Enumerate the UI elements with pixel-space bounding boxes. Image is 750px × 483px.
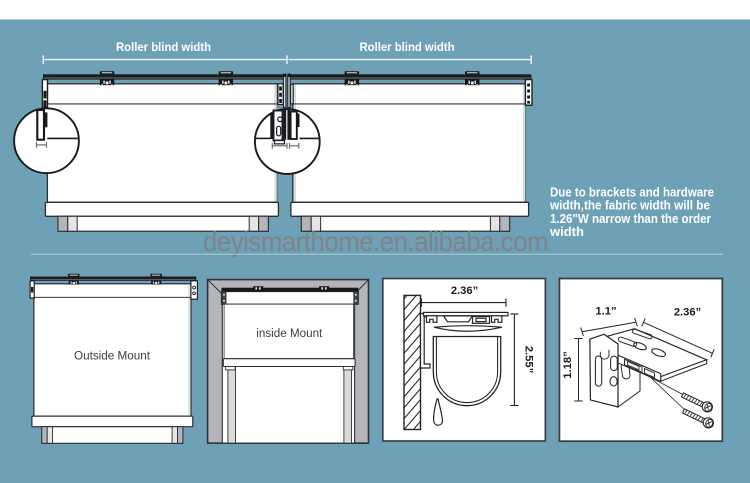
svg-text:width: width [549, 224, 584, 239]
svg-text:deyismarthome.en.alibaba.com: deyismarthome.en.alibaba.com [203, 226, 548, 257]
svg-text:Roller blind width: Roller blind width [116, 40, 211, 54]
svg-text:1.18”: 1.18” [562, 351, 574, 378]
svg-text:2.36”: 2.36” [451, 285, 478, 297]
svg-text:2.55”: 2.55” [523, 346, 535, 373]
svg-text:inside Mount: inside Mount [256, 326, 323, 340]
svg-text:2.36”: 2.36” [674, 307, 701, 319]
svg-text:Roller blind width: Roller blind width [360, 40, 455, 54]
svg-text:1.1”: 1.1” [595, 306, 616, 318]
svg-text:Outside Mount: Outside Mount [74, 349, 151, 363]
